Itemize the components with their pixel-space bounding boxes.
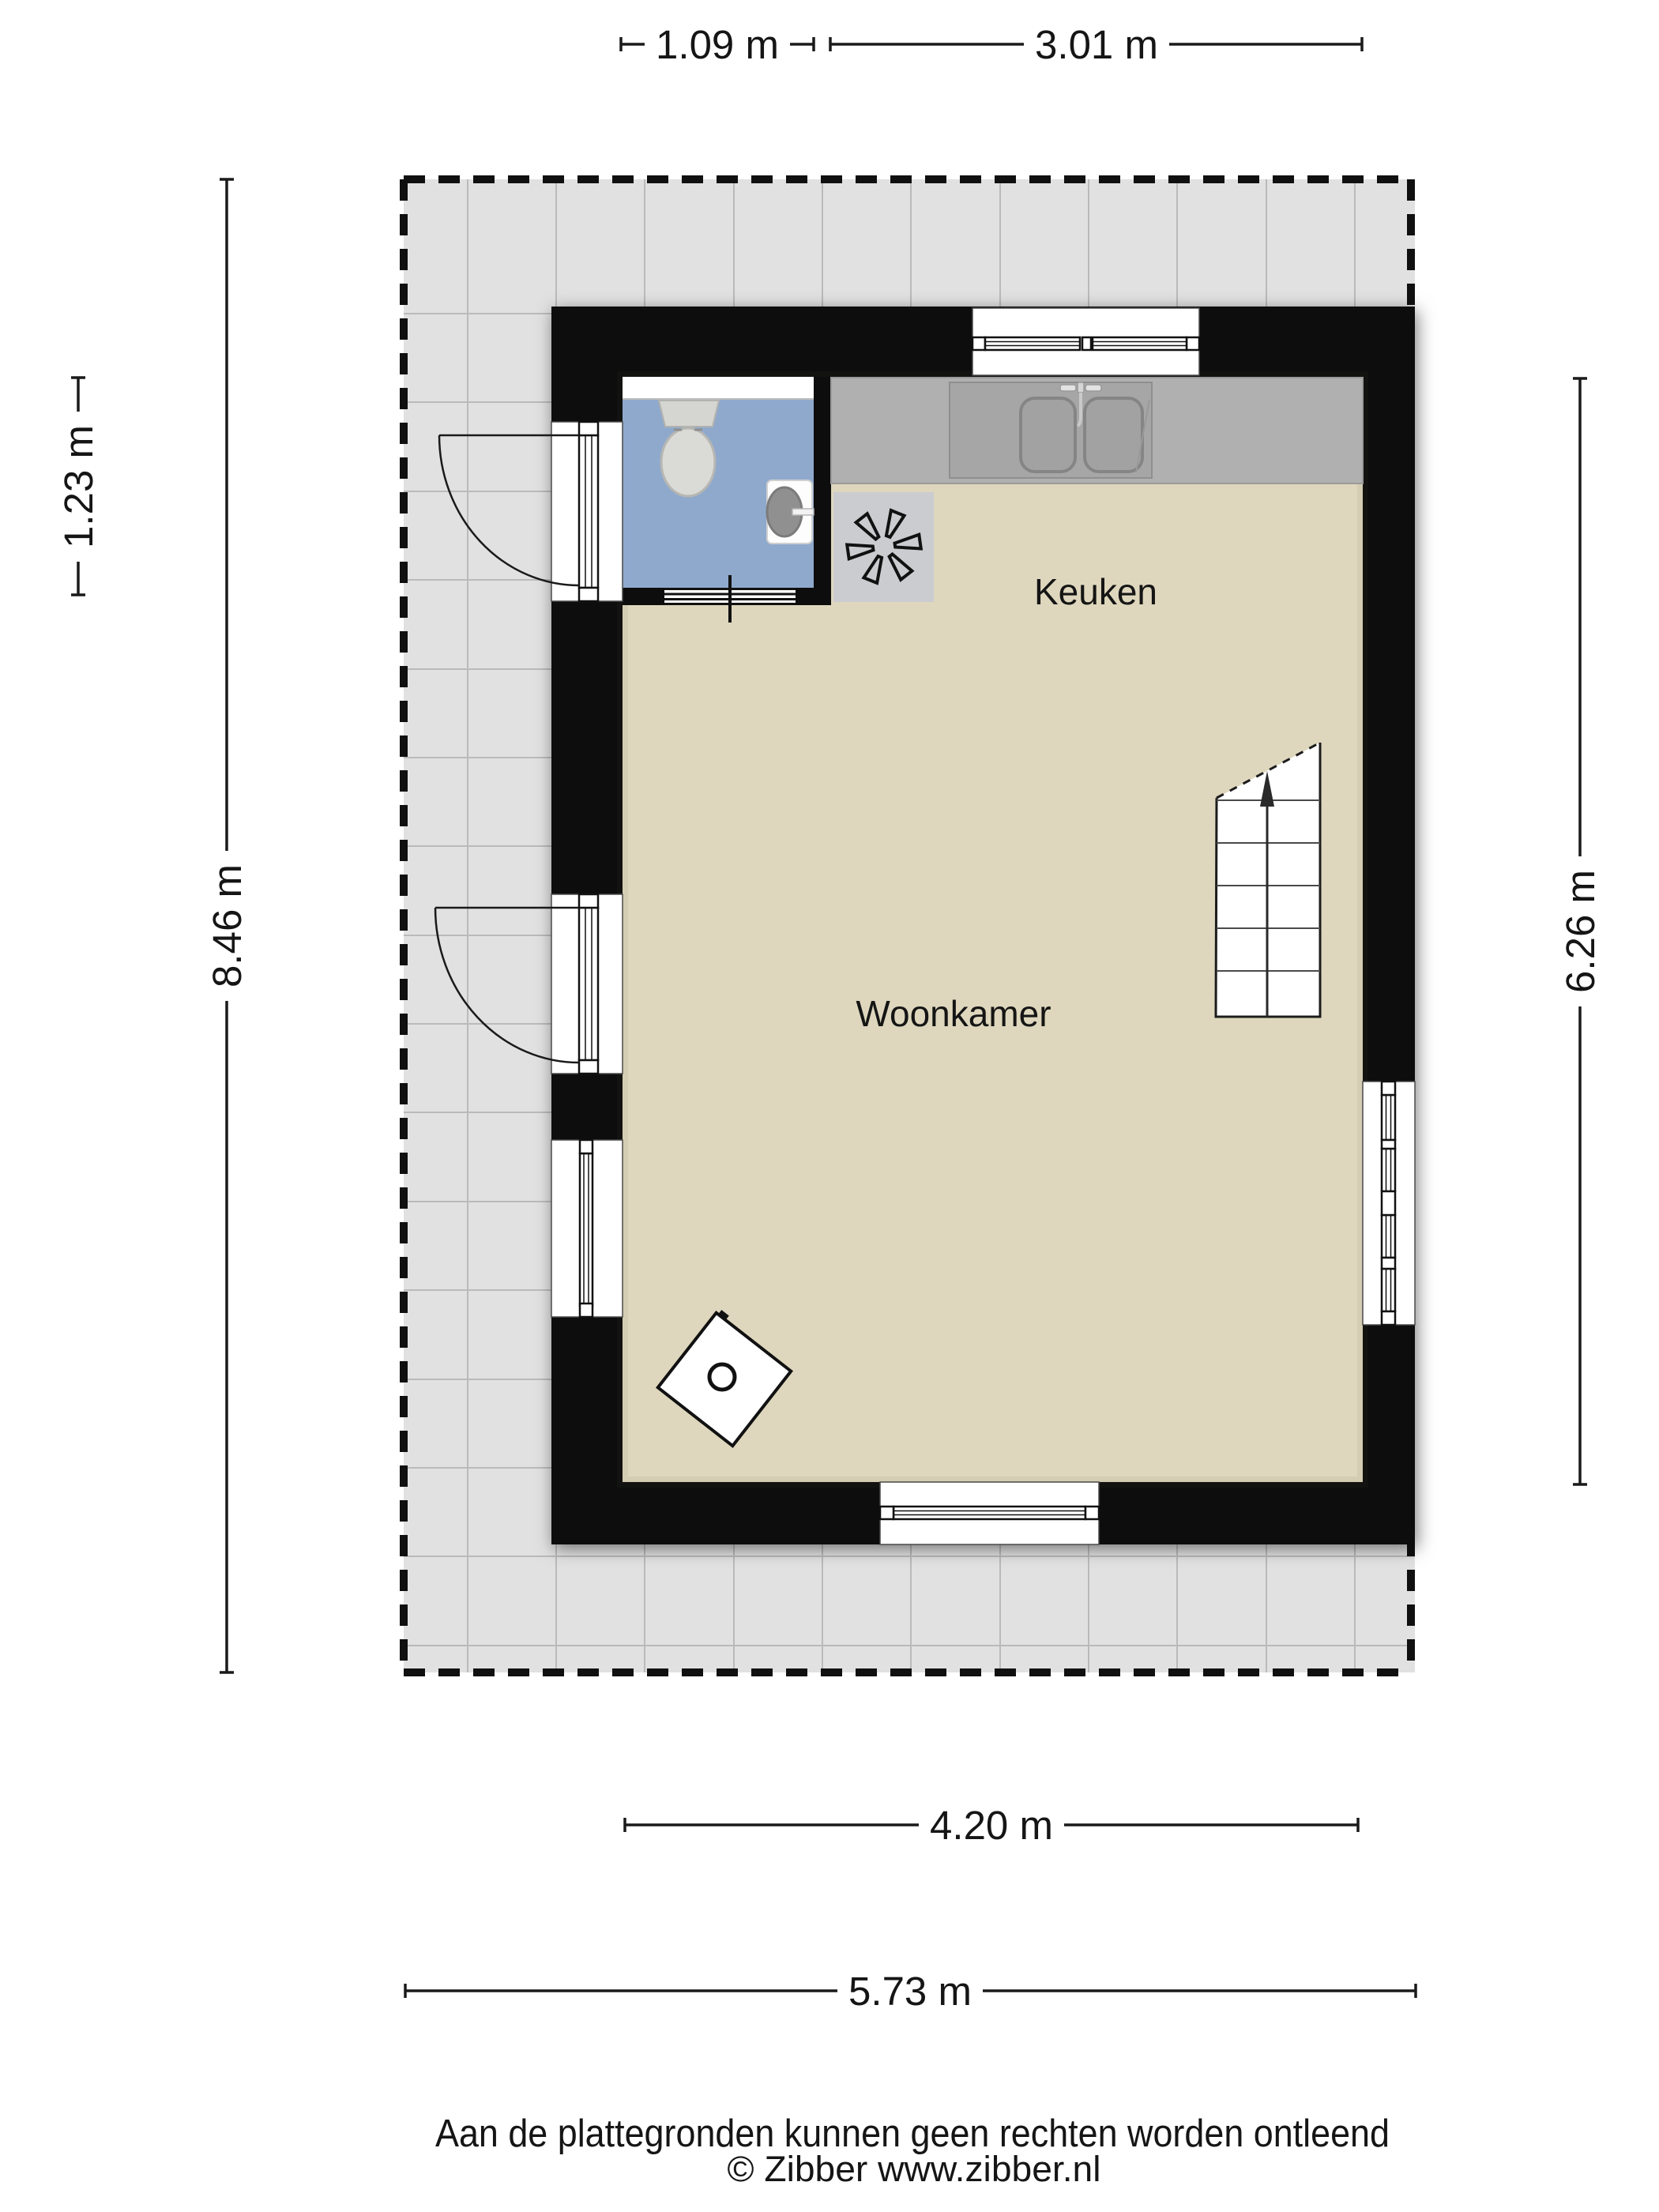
- svg-text:© Zibber www.zibber.nl: © Zibber www.zibber.nl: [728, 2149, 1101, 2189]
- svg-text:5.73 m: 5.73 m: [848, 1969, 972, 2014]
- svg-text:1.23 m: 1.23 m: [56, 425, 101, 548]
- svg-text:Keuken: Keuken: [1034, 571, 1157, 612]
- svg-text:Woonkamer: Woonkamer: [856, 993, 1051, 1034]
- svg-text:6.26 m: 6.26 m: [1558, 870, 1603, 993]
- svg-text:4.20 m: 4.20 m: [930, 1803, 1053, 1848]
- svg-text:8.46 m: 8.46 m: [205, 864, 250, 987]
- svg-text:3.01 m: 3.01 m: [1035, 22, 1158, 67]
- svg-text:1.09 m: 1.09 m: [656, 22, 779, 67]
